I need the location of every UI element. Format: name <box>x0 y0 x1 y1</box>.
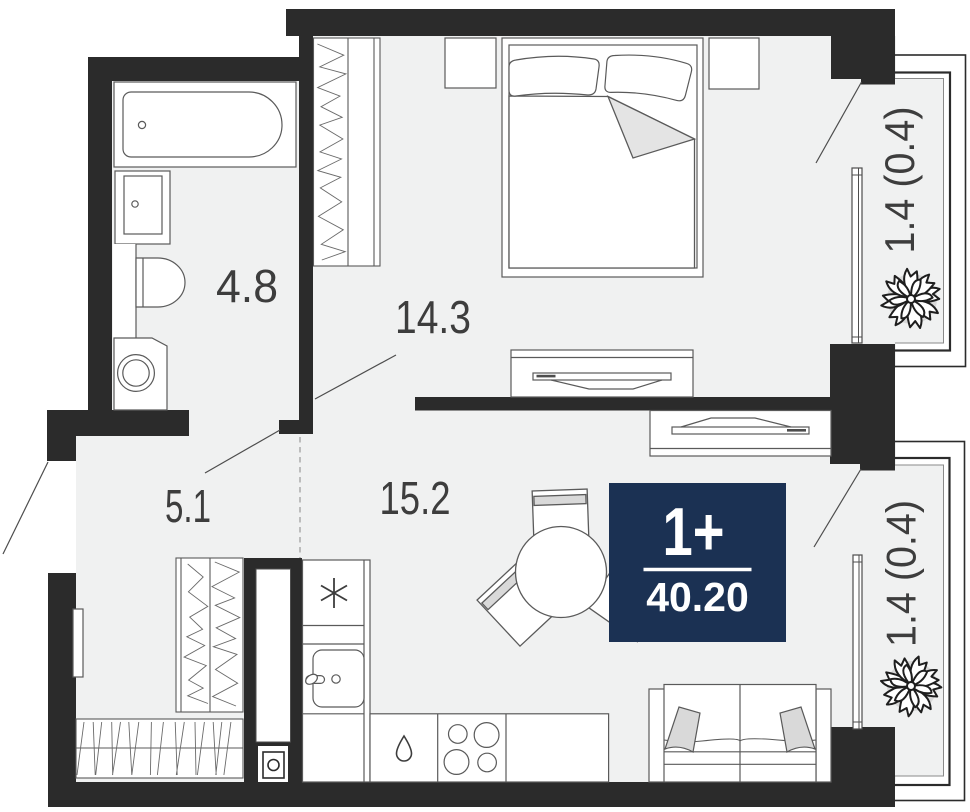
svg-text:40.20: 40.20 <box>646 574 749 620</box>
svg-text:1.4 (0.4): 1.4 (0.4) <box>876 107 923 254</box>
svg-text:4.8: 4.8 <box>216 260 278 312</box>
svg-text:5.1: 5.1 <box>165 480 211 532</box>
svg-text:15.2: 15.2 <box>380 472 451 524</box>
svg-text:1.4 (0.4): 1.4 (0.4) <box>878 500 925 647</box>
svg-text:1+: 1+ <box>663 494 725 570</box>
svg-text:14.3: 14.3 <box>395 291 471 343</box>
